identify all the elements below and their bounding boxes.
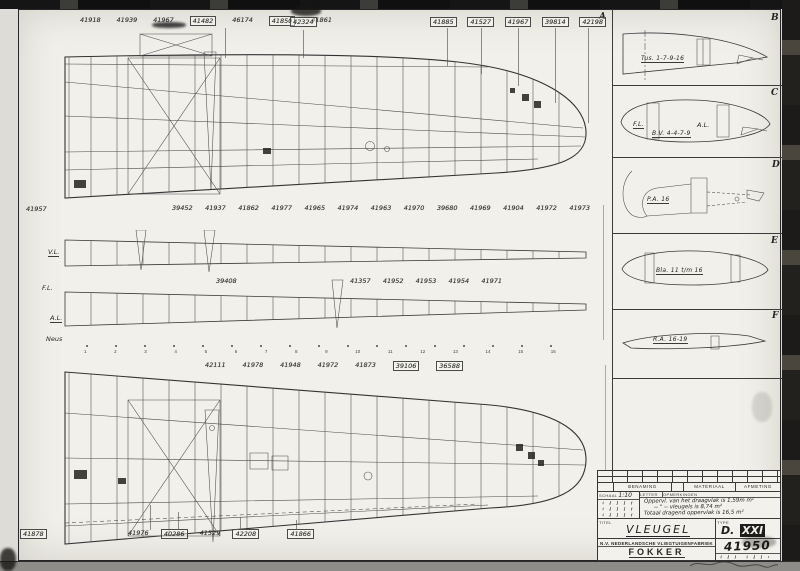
- station-dimension-ticks: [86, 345, 554, 347]
- drag-brace: [128, 400, 220, 536]
- leader-line: [447, 28, 448, 66]
- section-c-caption: B.V. 4-4-7-9: [652, 130, 691, 138]
- drawing-title: VLEUGEL: [626, 523, 690, 537]
- part-number: 41866: [287, 529, 314, 539]
- station-number: 12: [420, 349, 425, 354]
- part-number: 41977: [271, 204, 292, 212]
- part-number-row-lower: 42111419784194841972418733910636588: [205, 361, 463, 371]
- station-number: 3: [144, 349, 147, 354]
- part-number: 39814: [542, 17, 569, 27]
- part-number: 46174: [232, 16, 253, 24]
- title-block-header: BENAMING MATERIAAL AFMETING: [598, 483, 780, 492]
- part-number: 41963: [371, 204, 392, 212]
- part-number: 41873: [355, 361, 376, 369]
- spar-elevations: [58, 230, 593, 342]
- part-number: 41969: [470, 204, 491, 212]
- part-number: 41976: [128, 529, 149, 537]
- rear-spar-fitting: [332, 280, 343, 328]
- section-divider: [612, 378, 782, 379]
- station-number: 4: [174, 349, 177, 354]
- part-number: 41972: [536, 204, 557, 212]
- part-number: 36588: [436, 361, 463, 371]
- part-number: 41529: [200, 529, 221, 537]
- nose-label: Neus: [46, 335, 62, 343]
- scan-edge-right: [782, 0, 800, 571]
- pencil-mark: [752, 392, 772, 422]
- signature-scribble: [601, 513, 636, 517]
- aircraft-type-d: D.: [721, 524, 734, 537]
- leader-line: [481, 28, 482, 74]
- section-letter-e: E: [771, 236, 778, 246]
- false-spar-label: F.L.: [42, 284, 53, 292]
- dimension-chain: [603, 205, 604, 340]
- part-number: 41904: [503, 204, 524, 212]
- part-number: 41970: [404, 204, 425, 212]
- part-number-row-mid: 3945241937418624197741965419744196341970…: [172, 204, 590, 212]
- tiny-note-smudge: [152, 22, 186, 28]
- letter-label: LETTER: [640, 492, 663, 497]
- section-c-front-spar-label: F.L.: [633, 120, 644, 129]
- section-divider: [612, 233, 782, 234]
- schaal-value: 1:10: [618, 492, 631, 499]
- station-number: 8: [295, 349, 298, 354]
- station-number: 5: [205, 349, 208, 354]
- station-number: 11: [388, 349, 393, 354]
- signature-scribble: [601, 507, 636, 511]
- part-number: 39680: [437, 204, 458, 212]
- part-number: 41953: [416, 277, 437, 285]
- fittings: [74, 88, 541, 188]
- part-number: 41957: [26, 205, 47, 213]
- section-b-caption: Tus. 1-7-9-16: [641, 55, 684, 63]
- section-e-caption: Bla. 11 t/m 16: [656, 267, 703, 275]
- section-letter-f: F: [772, 311, 778, 321]
- part-number: 42111: [205, 361, 226, 369]
- schaal-label: SCHAAL: [598, 492, 618, 499]
- part-number: 42324: [290, 17, 317, 27]
- section-d-caption: P.A. 16: [647, 196, 669, 204]
- remark-line: Totaal dragend oppervlak is 16,5 m²: [640, 509, 780, 516]
- fokker-logo: FOKKER: [629, 547, 685, 558]
- airfoil-section-b: [615, 30, 777, 82]
- materiaal-header: MATERIAAL: [684, 483, 736, 491]
- drag-brace: [128, 58, 220, 194]
- section-divider: [612, 157, 782, 158]
- part-number: 40286: [161, 529, 188, 539]
- part-number: 41527: [467, 17, 494, 27]
- retracted-structure-detail: [138, 28, 218, 60]
- front-spar-fitting: [136, 230, 146, 270]
- corner-smudge: [0, 548, 16, 571]
- station-number: 6: [235, 349, 238, 354]
- part-number: 41878: [20, 529, 47, 539]
- benaming-header: BENAMING: [614, 483, 672, 491]
- aircraft-type-roman: XXI: [740, 524, 765, 537]
- station-number: 9: [325, 349, 328, 354]
- part-number: 41967: [505, 17, 532, 27]
- part-number: 41918: [80, 16, 101, 24]
- part-number-row-bottom: 4197640286415294220841866: [128, 529, 314, 539]
- section-c-rear-spar-label: A.L.: [697, 121, 709, 129]
- station-number: 1: [84, 349, 87, 354]
- part-number: 41482: [190, 16, 217, 26]
- part-number-row-spar: 4135741952419534195441971: [350, 277, 502, 285]
- part-number: 41357: [350, 277, 371, 285]
- part-number: 41978: [243, 361, 264, 369]
- leader-line: [296, 520, 297, 530]
- part-number: 41862: [238, 204, 259, 212]
- scan-edge-top: [0, 0, 800, 9]
- part-number: 39106: [393, 361, 420, 371]
- leader-line: [225, 28, 226, 58]
- section-letter-b: B: [771, 13, 779, 23]
- part-number: 41885: [430, 17, 457, 27]
- part-number: 41965: [304, 204, 325, 212]
- handwritten-squiggle: [688, 558, 780, 570]
- fittings: [74, 444, 544, 484]
- front-spar-label: V.L.: [48, 248, 59, 257]
- opmerkingen-label: OPMERKINGEN: [663, 492, 697, 497]
- section-divider: [612, 309, 782, 310]
- station-number: 14: [485, 349, 490, 354]
- part-number: 39408: [216, 277, 237, 285]
- station-number-row: 12345678910111213141516: [84, 349, 556, 354]
- part-number: 39452: [172, 204, 193, 212]
- station-number: 13: [453, 349, 458, 354]
- scan-edge-bottom: [0, 561, 800, 571]
- rear-spar-label: A.L.: [50, 314, 62, 323]
- station-number: 16: [551, 349, 556, 354]
- stamp-smudge: [742, 536, 776, 548]
- part-number: 41952: [383, 277, 404, 285]
- part-number-row-top-right: 4188541527419673981442198: [430, 17, 606, 27]
- section-f-caption: R.A. 16-19: [653, 336, 688, 344]
- ink-smudge: [291, 6, 321, 16]
- part-number: 42198: [579, 17, 606, 27]
- part-number: 42208: [232, 529, 259, 539]
- part-number: 41973: [569, 204, 590, 212]
- station-number: 15: [518, 349, 523, 354]
- part-number: 41939: [117, 16, 138, 24]
- lower-wing-planform: [58, 358, 593, 550]
- airfoil-section-f: [615, 328, 777, 364]
- section-divider: [612, 85, 782, 86]
- part-number: 41937: [205, 204, 226, 212]
- drawing-sheet: A B C D E F Tus. 1-7-9-16 F.L. B.V. 4-4-…: [0, 0, 800, 571]
- scan-edge-left: [0, 0, 18, 571]
- station-number: 10: [355, 349, 360, 354]
- leader-line: [240, 517, 241, 530]
- afmeting-header: AFMETING: [736, 483, 780, 491]
- part-number: 41954: [448, 277, 469, 285]
- leader-line: [303, 30, 304, 58]
- leader-line: [518, 28, 519, 86]
- part-number: 41974: [338, 204, 359, 212]
- part-number: 41971: [481, 277, 502, 285]
- leader-line: [588, 28, 589, 123]
- titel-label: TITEL: [599, 520, 612, 525]
- remarks-row: SCHAAL 1:10 LETTER OPMERKINGEN Oppervl. …: [598, 492, 780, 519]
- leader-line: [150, 505, 151, 530]
- panel-divider: [612, 9, 613, 470]
- leader-line: [555, 28, 556, 103]
- upper-wing-planform: [58, 42, 593, 204]
- signature-scribble: [601, 501, 636, 505]
- control-pylon: [205, 410, 219, 542]
- nose-section-d: [615, 168, 777, 228]
- leader-line: [178, 512, 179, 530]
- part-number: 41948: [280, 361, 301, 369]
- station-number: 2: [114, 349, 117, 354]
- part-number: 41972: [318, 361, 339, 369]
- station-number: 7: [265, 349, 268, 354]
